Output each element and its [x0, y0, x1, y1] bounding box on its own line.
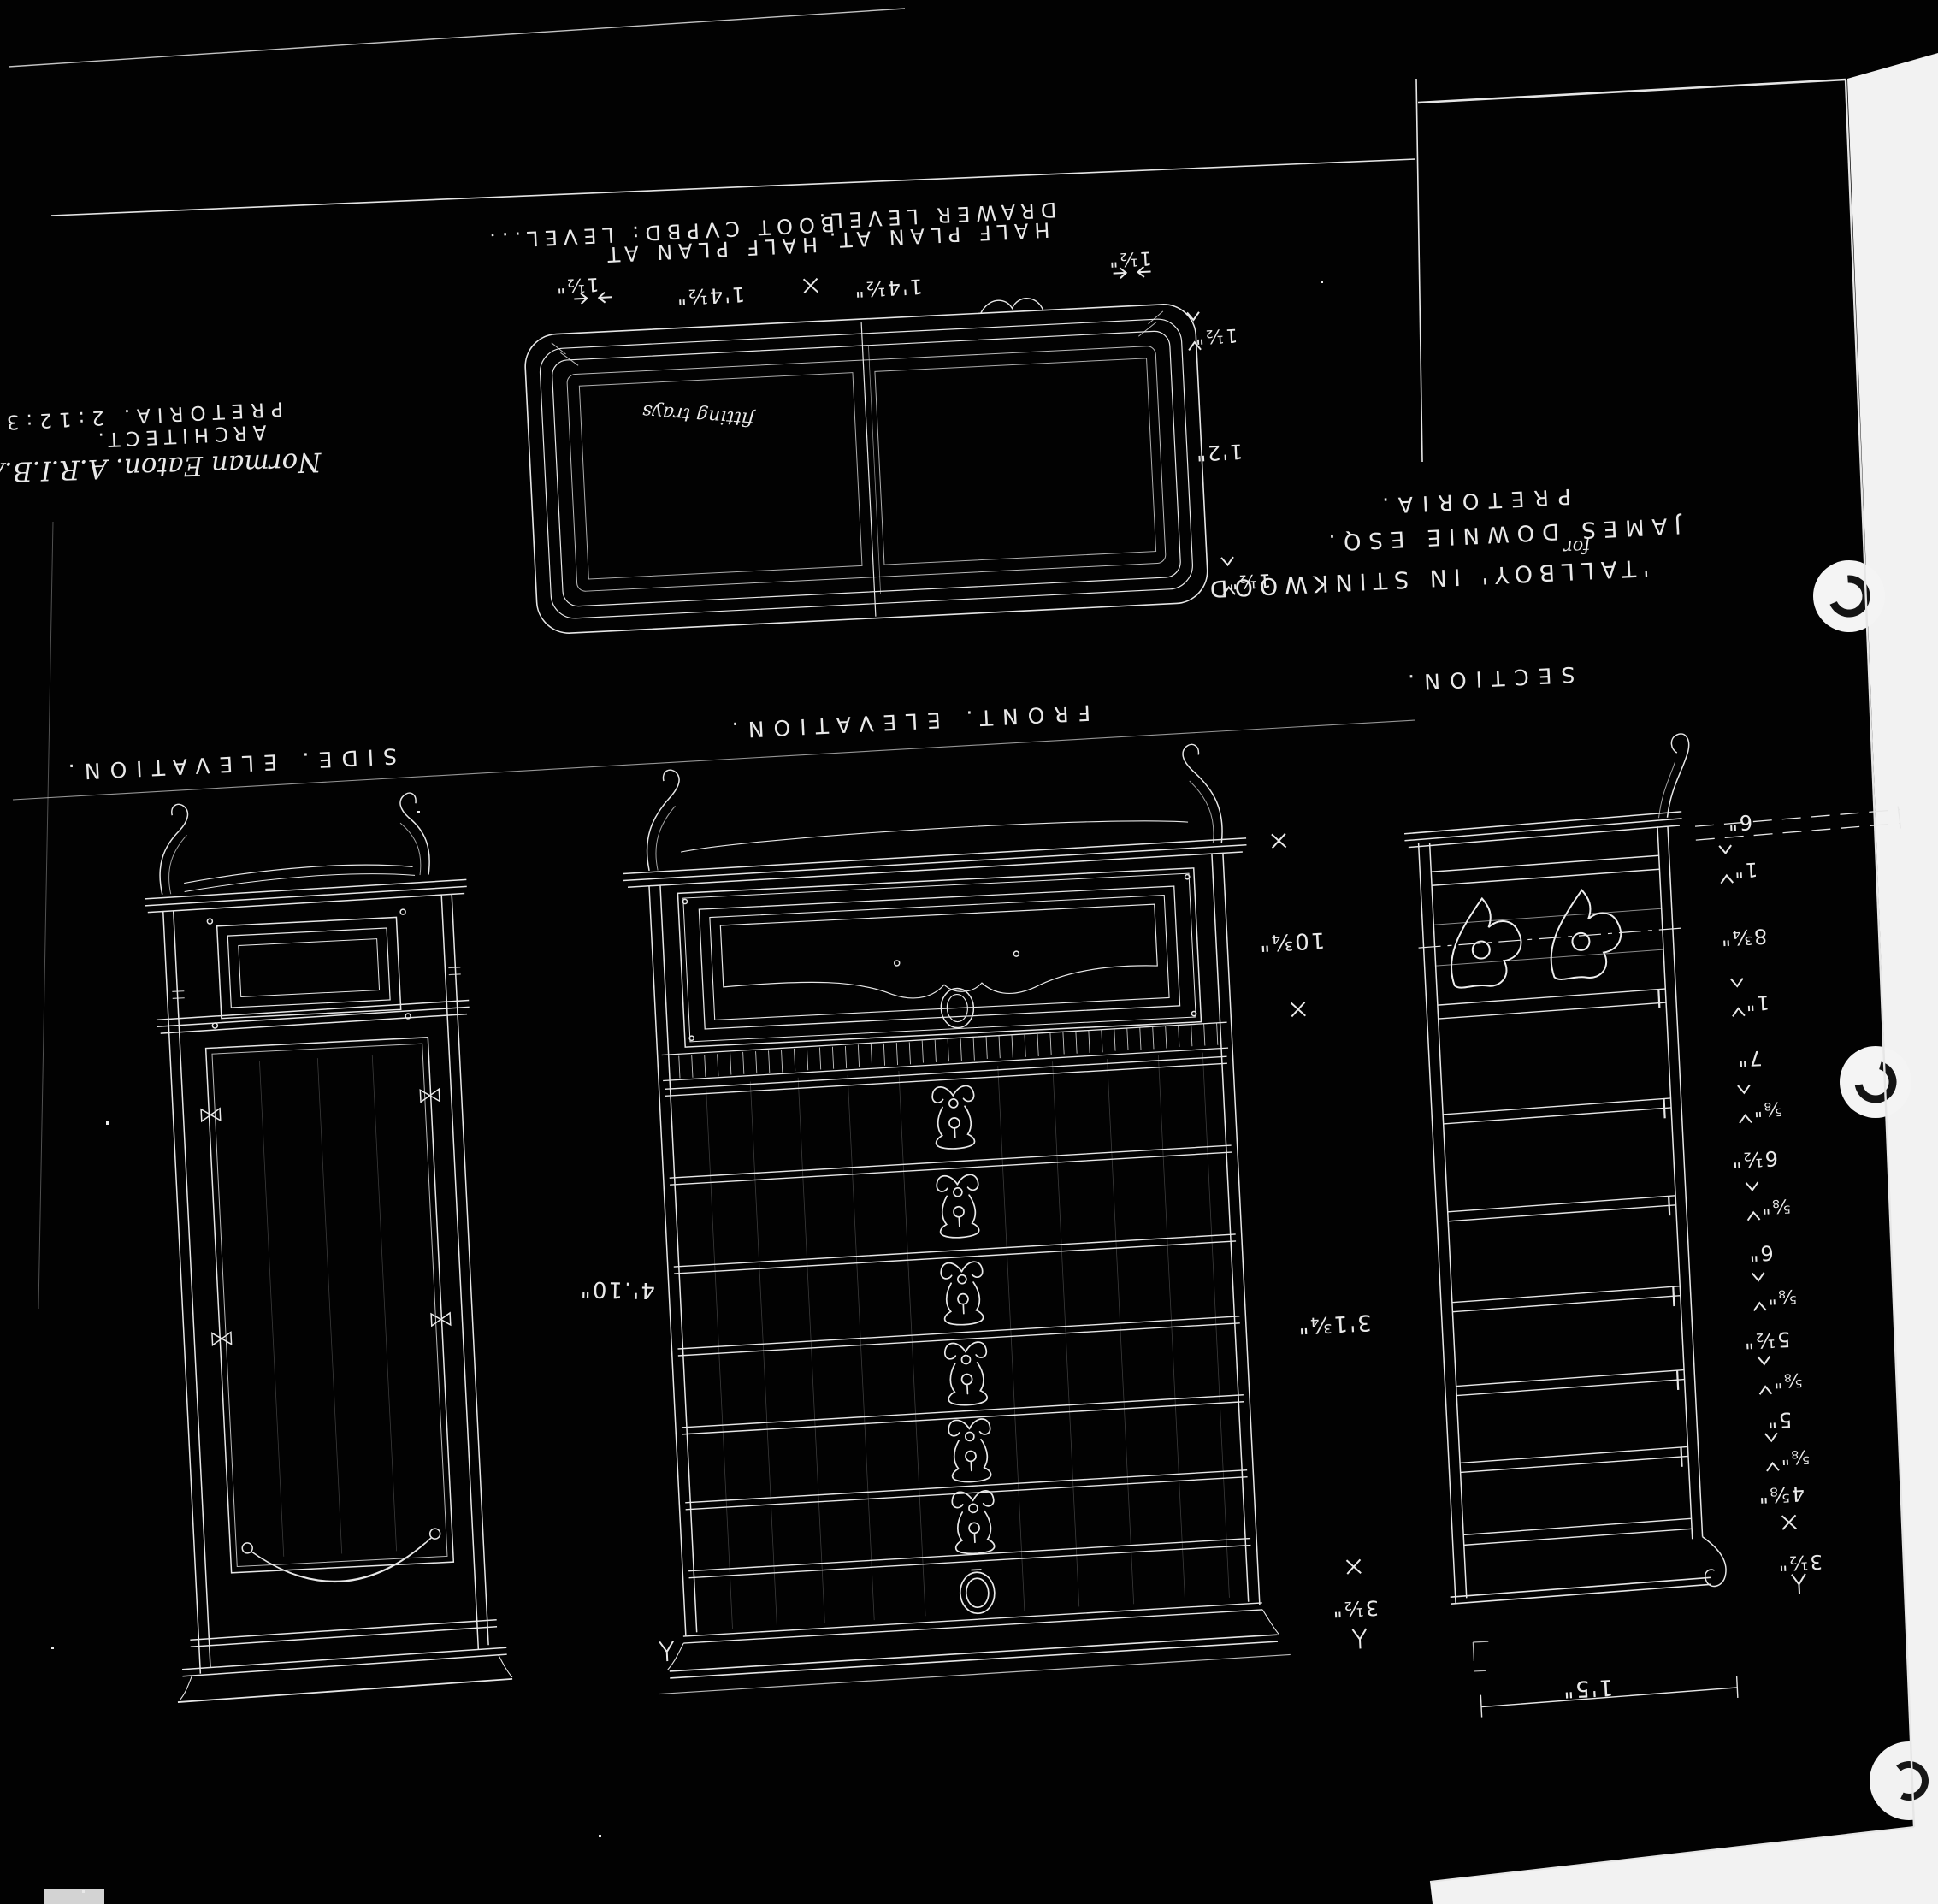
section-front-line: [1657, 826, 1703, 1540]
ring-pull-icon: [960, 1569, 996, 1614]
front-scroll-right: [1183, 743, 1223, 844]
door-panel-scrolled: [720, 904, 1158, 1008]
drawer-pull-icon: [952, 1490, 996, 1554]
side-elevation-view: [134, 790, 513, 1702]
caption-section: SECTION.: [1398, 662, 1575, 695]
butterfly-key-icon: [201, 1109, 221, 1121]
page-sliver-bottom-left: [44, 1889, 104, 1904]
dim-base-height: 3½": [1331, 1595, 1380, 1622]
dashed-rail: [1695, 809, 1901, 840]
title-main: 'TALLBOY' IN STINKWOOD: [1202, 553, 1650, 601]
side-grain-lines: [259, 1055, 396, 1557]
scanned-drawing-sheet: 1½" 1'4½" 1'4½" 1½" 1½" 1'2" 1½" fitting…: [0, 0, 1938, 1904]
boot-cupboard-door: [677, 868, 1201, 1047]
drawing-sheet-svg: 1½" 1'4½" 1'4½" 1½" 1½" 1'2" 1½" fitting…: [0, 0, 1938, 1904]
plan-view: [523, 290, 1209, 635]
caption-side-elevation: SIDE. ELEVATION.: [58, 743, 397, 784]
dim-section-h1: 1": [1732, 858, 1758, 881]
front-base-line: [659, 1654, 1291, 1694]
punch-hole-ring: [1813, 560, 1885, 632]
plan-boot-cupboard-half: [579, 373, 862, 579]
front-scroll-left: [643, 770, 683, 871]
dim-arrows-icon: [1719, 845, 1733, 884]
dim-section-h12: 5": [1765, 1407, 1793, 1432]
drawer-pull-icon: [941, 1262, 985, 1326]
arrow-icon: [1792, 1574, 1806, 1594]
dim-section-depth: 1'5": [1561, 1674, 1614, 1702]
boot-hanger-icon: [1448, 896, 1523, 988]
x-mark-icon: [804, 279, 818, 293]
dim-section-h3: 1": [1744, 990, 1770, 1014]
dim-section-h7: ⅝": [1759, 1194, 1791, 1217]
drawer-pull-icon: [937, 1174, 981, 1239]
drawer-lips: [1658, 989, 1681, 1466]
section-view: [1400, 724, 1938, 1719]
title-block: PRETORIA. JAMES DOWNIE ESQ. for 'TALLBOY…: [1199, 479, 1686, 602]
dim-arrows-icon: [1731, 979, 1745, 1017]
title-city: PRETORIA.: [1373, 484, 1572, 518]
dim-section-h6: 6½": [1730, 1146, 1779, 1173]
dim-plan-depth: 1'2": [1194, 439, 1243, 465]
caption-front-elevation: FRONT. ELEVATION.: [722, 701, 1090, 743]
dim-section-h10: 5½": [1742, 1327, 1791, 1353]
dim-arrows-icon: [1765, 1433, 1779, 1471]
dim-plan-width-left: 1'4½": [675, 282, 746, 310]
dim-section-h11: ⅝": [1771, 1369, 1803, 1392]
dim-section-h5: ⅝": [1752, 1097, 1783, 1121]
side-cap-moulding: [145, 879, 468, 912]
dim-arrows-icon: [1738, 1085, 1752, 1123]
dim-plan-side-top: 1½": [1193, 324, 1238, 347]
drawing-content: 1½" 1'4½" 1'4½" 1½" 1½" 1'2" 1½" fitting…: [0, 157, 1938, 1788]
x-mark-icon: [1272, 834, 1286, 849]
side-base-line: [178, 1679, 513, 1702]
plan-captions: BOOT CVPBD: LEVEL... HALF PLAN AT DRAWER…: [483, 198, 1059, 273]
architect-signature: Norman Eaton. A.R.I.B.A.: [0, 446, 322, 488]
section-dimension-column: 6" 1" 8¾" 1" 7" ⅝" 6½" ⅝" 6" ⅝" 5½" ⅝" 5…: [1713, 808, 1823, 1596]
section-back-line: [1419, 843, 1467, 1604]
side-base-moulding: [180, 1619, 507, 1676]
section-foot-scroll: [1703, 1535, 1727, 1587]
dim-plan-width-right: 1'4½": [853, 275, 924, 302]
x-mark-icon: [1291, 1002, 1306, 1017]
section-base-line: [1450, 1577, 1711, 1604]
frame-line-divider: [1416, 79, 1422, 462]
front-elevation-view: [613, 742, 1291, 1694]
side-scroll-left: [157, 804, 192, 895]
front-base-moulding: [669, 1635, 1278, 1678]
side-scroll-right: [399, 792, 430, 876]
specks: [51, 281, 1323, 1893]
plan-outline: [523, 303, 1208, 635]
butterfly-key-icon: [212, 1333, 232, 1345]
architect-block: PRETORIA. 2:12:33. ARCHITECT. Norman Eat…: [0, 395, 323, 494]
dim-arrows-icon: [1752, 1273, 1766, 1311]
plan-centerline: [861, 322, 876, 617]
reeded-frieze: [661, 1022, 1228, 1080]
dim-section-h2: 8¾": [1719, 924, 1768, 950]
plan-dimensions: 1½" 1'4½" 1'4½" 1½" 1½" 1'2" 1½" fitting…: [554, 241, 1272, 628]
dim-arrows-icon: [1746, 1182, 1759, 1221]
dim-plan-corner: 1½": [1108, 246, 1153, 269]
drawer-pull-icon: [948, 1419, 993, 1483]
side-waist-moulding: [157, 1000, 470, 1033]
page-margin: [44, 53, 1938, 1904]
drawer-pull-icon: [932, 1085, 977, 1150]
arrow-icon: [1352, 1629, 1367, 1649]
frame-line-top: [51, 159, 1415, 216]
dim-section-h13: ⅝": [1779, 1446, 1811, 1469]
section-frieze: [1431, 855, 1660, 885]
x-mark-icon: [1782, 1515, 1797, 1529]
dim-section-h9: ⅝": [1766, 1285, 1798, 1308]
dim-door-height: 10¾": [1257, 926, 1326, 955]
section-scroll: [1663, 734, 1693, 818]
frame-line-left: [38, 522, 53, 1309]
section-dividers: [1438, 989, 1693, 1545]
page-margin-right: [1430, 53, 1938, 1904]
dim-section-h4: 7": [1736, 1046, 1764, 1071]
dim-arrows-icon: [1758, 1357, 1771, 1395]
section-cap-moulding: [1404, 812, 1683, 848]
punch-hole-ring: [1840, 1046, 1911, 1118]
plan-annotation: fitting trays: [641, 400, 756, 430]
dim-section-h15: 3½": [1776, 1550, 1823, 1575]
drawer-pull-icon: [944, 1342, 989, 1406]
dim-section-h8: 6": [1747, 1240, 1775, 1265]
title-for: for: [1562, 536, 1592, 559]
arrow-icon: [659, 1641, 674, 1662]
front-grain-lines: [706, 1053, 1230, 1629]
boot-hanger-icon: [1548, 889, 1623, 980]
crease-line-top: [9, 9, 905, 67]
plan-drawer-half: [875, 358, 1156, 565]
dim-front-height: 4'.10": [579, 1275, 656, 1303]
dim-drawer-stack: 3'1¾": [1297, 1309, 1373, 1338]
dim-plan-gap-left: 1½": [554, 273, 600, 296]
dim-section-h0: 6": [1726, 810, 1753, 835]
drawer-dividers: [656, 1056, 1262, 1643]
dim-section-h14: 4⅝": [1757, 1481, 1805, 1508]
sheet-edge-top-right: [1418, 80, 1846, 103]
front-cap-moulding: [623, 838, 1247, 888]
x-mark-icon: [1346, 1559, 1361, 1574]
